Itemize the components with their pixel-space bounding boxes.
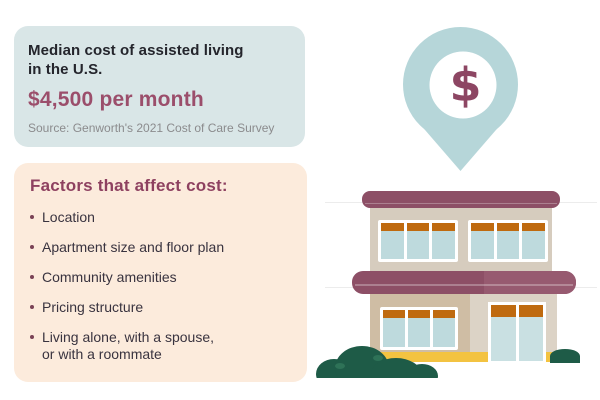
window-glass xyxy=(381,231,404,259)
bush-left-icon xyxy=(316,332,438,378)
factor-label: Pricing structure xyxy=(42,299,143,316)
door-header xyxy=(519,305,544,317)
cost-amount: $4,500 per month xyxy=(28,88,291,112)
window-glass xyxy=(522,231,545,259)
bush-right-icon xyxy=(550,349,580,363)
window-upper-left xyxy=(378,220,458,262)
window-pane xyxy=(407,223,430,259)
window-pane xyxy=(381,223,404,259)
window-pane xyxy=(432,223,455,259)
door-pane xyxy=(491,305,516,361)
window-header xyxy=(383,310,405,318)
window-header xyxy=(407,223,430,231)
bullet-dot xyxy=(30,245,34,249)
factors-list: Location Apartment size and floor plan C… xyxy=(30,209,293,363)
door-glass xyxy=(519,317,544,361)
window-glass xyxy=(497,231,520,259)
factors-heading: Factors that affect cost: xyxy=(30,176,293,196)
factor-label: Apartment size and floor plan xyxy=(42,239,224,256)
window-glass xyxy=(407,231,430,259)
door-pane xyxy=(519,305,544,361)
window-pane xyxy=(522,223,545,259)
window-header xyxy=(522,223,545,231)
roof-bar-top xyxy=(362,191,560,208)
factor-label: Location xyxy=(42,209,95,226)
door xyxy=(488,302,546,364)
map-pin-icon: $ xyxy=(403,27,518,173)
factor-label: Living alone, with a spouse, or with a r… xyxy=(42,329,214,363)
roof-bar-light-section xyxy=(484,271,576,294)
window-header xyxy=(381,223,404,231)
factor-item: Location xyxy=(30,209,293,226)
cost-card-title: Median cost of assisted living in the U.… xyxy=(28,41,291,79)
window-header xyxy=(433,310,455,318)
factors-card: Factors that affect cost: Location Apart… xyxy=(14,163,307,382)
roof-bar-middle xyxy=(352,271,576,294)
window-pane xyxy=(471,223,494,259)
window-header xyxy=(432,223,455,231)
window-upper-right xyxy=(468,220,548,262)
roof-highlight xyxy=(355,284,573,286)
factor-item: Apartment size and floor plan xyxy=(30,239,293,256)
window-header xyxy=(408,310,430,318)
bullet-dot xyxy=(30,215,34,219)
window-header xyxy=(497,223,520,231)
factor-item: Living alone, with a spouse, or with a r… xyxy=(30,329,293,363)
bullet-dot xyxy=(30,275,34,279)
factor-item: Community amenities xyxy=(30,269,293,286)
door-glass xyxy=(491,317,516,361)
bullet-dot xyxy=(30,335,34,339)
factor-item: Pricing structure xyxy=(30,299,293,316)
roof-highlight xyxy=(365,203,557,205)
window-glass xyxy=(471,231,494,259)
window-header xyxy=(471,223,494,231)
median-cost-card: Median cost of assisted living in the U.… xyxy=(14,26,305,147)
door-header xyxy=(491,305,516,317)
window-pane xyxy=(497,223,520,259)
infographic-page: Median cost of assisted living in the U.… xyxy=(0,0,600,400)
window-glass xyxy=(432,231,455,259)
cost-source: Source: Genworth's 2021 Cost of Care Sur… xyxy=(28,121,291,135)
dollar-sign: $ xyxy=(403,27,523,142)
factor-label: Community amenities xyxy=(42,269,177,286)
bullet-dot xyxy=(30,305,34,309)
